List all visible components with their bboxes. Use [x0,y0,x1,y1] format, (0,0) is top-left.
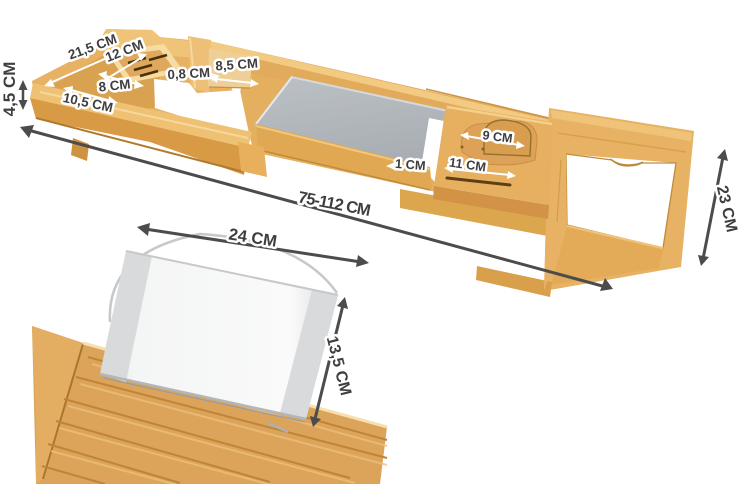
svg-text:0,8 CM: 0,8 CM [167,65,210,82]
svg-text:8,5 CM: 8,5 CM [215,56,258,74]
svg-text:4,5 CM: 4,5 CM [0,62,19,117]
svg-text:1 CM: 1 CM [395,156,427,173]
